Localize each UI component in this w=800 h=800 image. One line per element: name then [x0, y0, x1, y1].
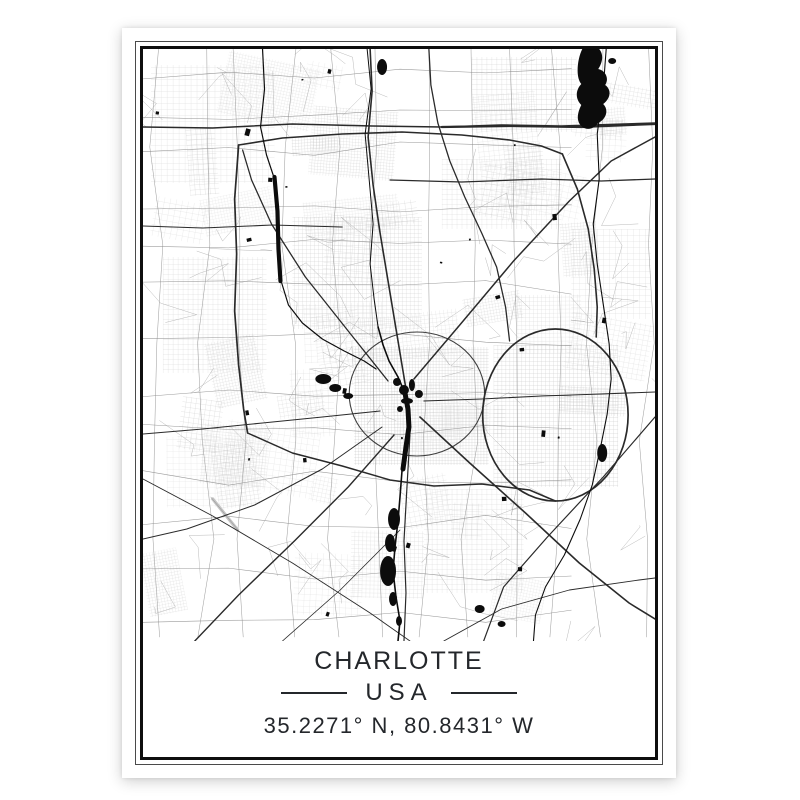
city-street-map-graphic	[143, 49, 655, 641]
poster-outer-frame: CHARLOTTE USA 35.2271° N, 80.8431° W	[135, 41, 663, 765]
city-title: CHARLOTTE	[314, 648, 483, 676]
right-dash	[451, 692, 517, 694]
map-poster: CHARLOTTE USA 35.2271° N, 80.8431° W	[122, 28, 676, 778]
poster-caption: CHARLOTTE USA 35.2271° N, 80.8431° W	[143, 641, 655, 757]
poster-inner-frame: CHARLOTTE USA 35.2271° N, 80.8431° W	[140, 46, 658, 760]
left-dash	[281, 692, 347, 694]
country-label: USA	[365, 680, 432, 706]
country-row: USA	[281, 680, 516, 706]
coordinates-label: 35.2271° N, 80.8431° W	[264, 713, 535, 739]
